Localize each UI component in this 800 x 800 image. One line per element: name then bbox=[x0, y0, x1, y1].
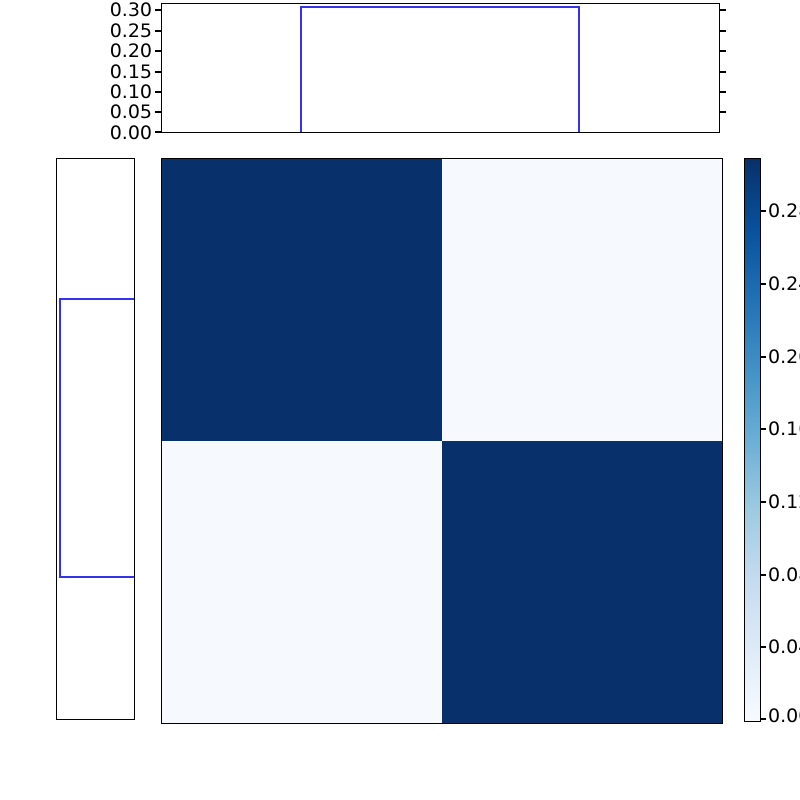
heatmap-cell-bottom-right bbox=[442, 441, 722, 723]
colorbar-tick-label: 0.24 bbox=[768, 274, 800, 294]
tick-mark bbox=[761, 501, 766, 503]
top-marginal-panel bbox=[161, 3, 720, 133]
colorbar-tick-label: 0.20 bbox=[768, 347, 800, 367]
tick-mark bbox=[720, 50, 726, 52]
tick-mark bbox=[155, 30, 161, 32]
left-marginal-panel bbox=[56, 158, 135, 720]
top-axis-tick-label: 0.25 bbox=[90, 21, 152, 41]
top-axis-tick-label: 0.05 bbox=[90, 102, 152, 122]
colorbar-tick-label: 0.04 bbox=[768, 637, 800, 657]
colorbar-tick-label: 0.16 bbox=[768, 419, 800, 439]
colorbar-tick-label: 0.08 bbox=[768, 565, 800, 585]
top-axis-tick-label: 0.00 bbox=[90, 123, 152, 143]
joint-heatmap bbox=[161, 158, 723, 724]
colorbar bbox=[744, 158, 761, 722]
top-axis-tick-label: 0.20 bbox=[90, 41, 152, 61]
tick-mark bbox=[720, 71, 726, 73]
tick-mark bbox=[155, 111, 161, 113]
top-axis-tick-label: 0.15 bbox=[90, 62, 152, 82]
tick-mark bbox=[761, 646, 766, 648]
tick-mark bbox=[155, 71, 161, 73]
heatmap-cell-bottom-left bbox=[162, 441, 442, 723]
tick-mark bbox=[720, 9, 726, 11]
tick-mark bbox=[155, 9, 161, 11]
tick-mark bbox=[761, 718, 766, 720]
colorbar-tick-label: 0.28 bbox=[768, 201, 800, 221]
top-axis-tick-label: 0.30 bbox=[90, 0, 152, 20]
heatmap-cell-top-right bbox=[442, 159, 722, 441]
heatmap-cell-top-left bbox=[162, 159, 442, 441]
tick-mark bbox=[761, 574, 766, 576]
top-marginal-step-line bbox=[300, 6, 580, 132]
top-axis-tick-label: 0.10 bbox=[90, 82, 152, 102]
colorbar-tick-label: 0.00 bbox=[768, 706, 800, 726]
tick-mark bbox=[761, 428, 766, 430]
tick-mark bbox=[155, 91, 161, 93]
tick-mark bbox=[155, 50, 161, 52]
tick-mark bbox=[720, 111, 726, 113]
tick-mark bbox=[761, 283, 766, 285]
tick-mark bbox=[761, 356, 766, 358]
tick-mark bbox=[720, 30, 726, 32]
tick-mark bbox=[155, 131, 161, 133]
tick-mark bbox=[761, 210, 766, 212]
colorbar-tick-label: 0.12 bbox=[768, 492, 800, 512]
left-marginal-step-line bbox=[59, 298, 134, 578]
tick-mark bbox=[720, 91, 726, 93]
